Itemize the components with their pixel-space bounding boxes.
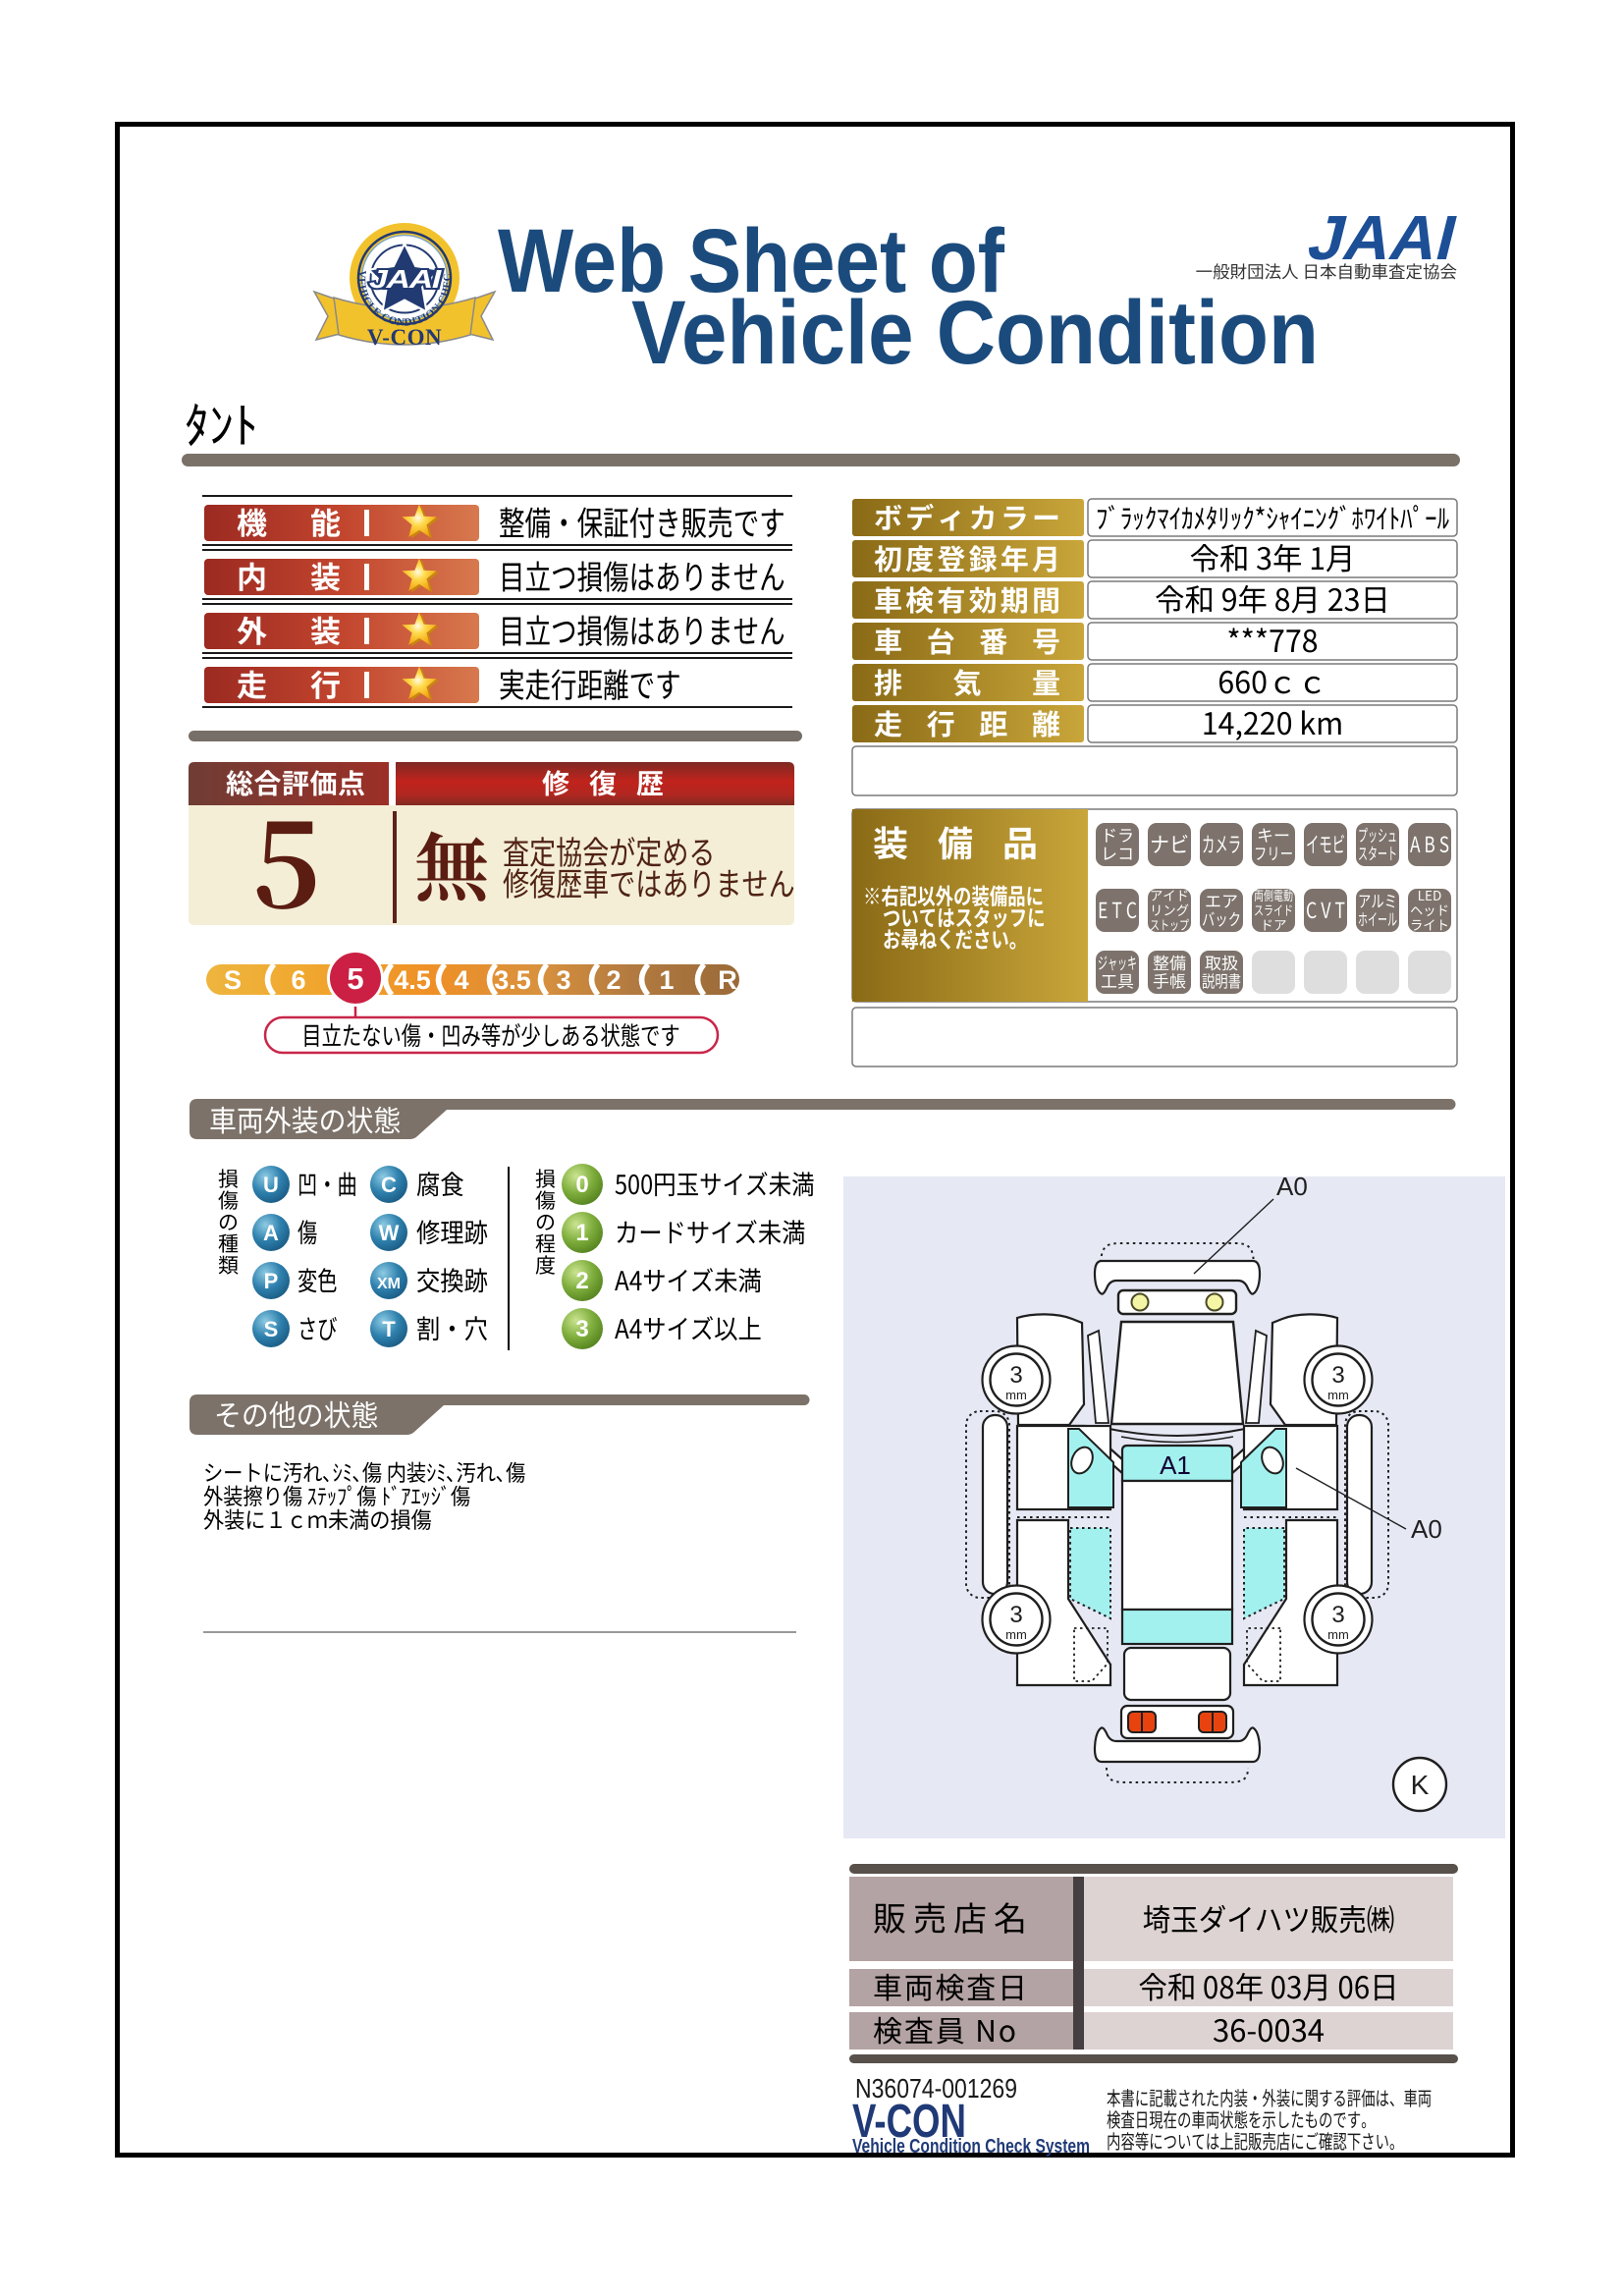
svg-text:3: 3 [556,965,570,995]
svg-text:T: T [382,1317,396,1341]
svg-text:3: 3 [1331,1602,1344,1628]
svg-text:3: 3 [1009,1602,1022,1628]
svg-text:3.5: 3.5 [494,965,531,995]
svg-text:2: 2 [606,965,621,995]
svg-text:mm: mm [1005,1627,1027,1642]
svg-text:3: 3 [1331,1362,1344,1389]
svg-text:4.5: 4.5 [394,965,431,995]
svg-text:mm: mm [1005,1388,1027,1402]
svg-text:C: C [381,1173,397,1197]
svg-text:1: 1 [659,965,674,995]
svg-text:R: R [718,965,737,995]
svg-text:4: 4 [454,965,468,995]
svg-text:XM: XM [377,1276,401,1292]
svg-text:3: 3 [1009,1362,1022,1389]
svg-text:5: 5 [347,961,363,996]
svg-text:S: S [224,965,242,995]
svg-text:JAAI: JAAI [1302,202,1465,273]
svg-text:A: A [263,1221,279,1245]
svg-text:1: 1 [575,1220,588,1246]
svg-text:A1: A1 [1160,1450,1191,1480]
svg-text:mm: mm [1327,1388,1349,1402]
svg-text:V-CON: V-CON [367,325,442,350]
svg-text:JAAI: JAAI [369,264,442,294]
svg-text:Vehicle Condition: Vehicle Condition [631,283,1319,383]
svg-text:0: 0 [575,1172,588,1198]
svg-text:P: P [264,1269,279,1293]
svg-text:A0: A0 [1276,1172,1308,1201]
svg-text:U: U [263,1173,279,1197]
svg-text:S: S [264,1317,279,1341]
svg-text:K: K [1411,1770,1430,1800]
svg-text:A0: A0 [1411,1514,1442,1544]
svg-text:W: W [379,1221,400,1245]
svg-text:6: 6 [291,965,305,995]
svg-text:mm: mm [1327,1627,1349,1642]
svg-text:3: 3 [575,1316,588,1342]
svg-text:Vehicle Condition Check System: Vehicle Condition Check System [852,2136,1090,2158]
svg-text:2: 2 [575,1268,588,1294]
